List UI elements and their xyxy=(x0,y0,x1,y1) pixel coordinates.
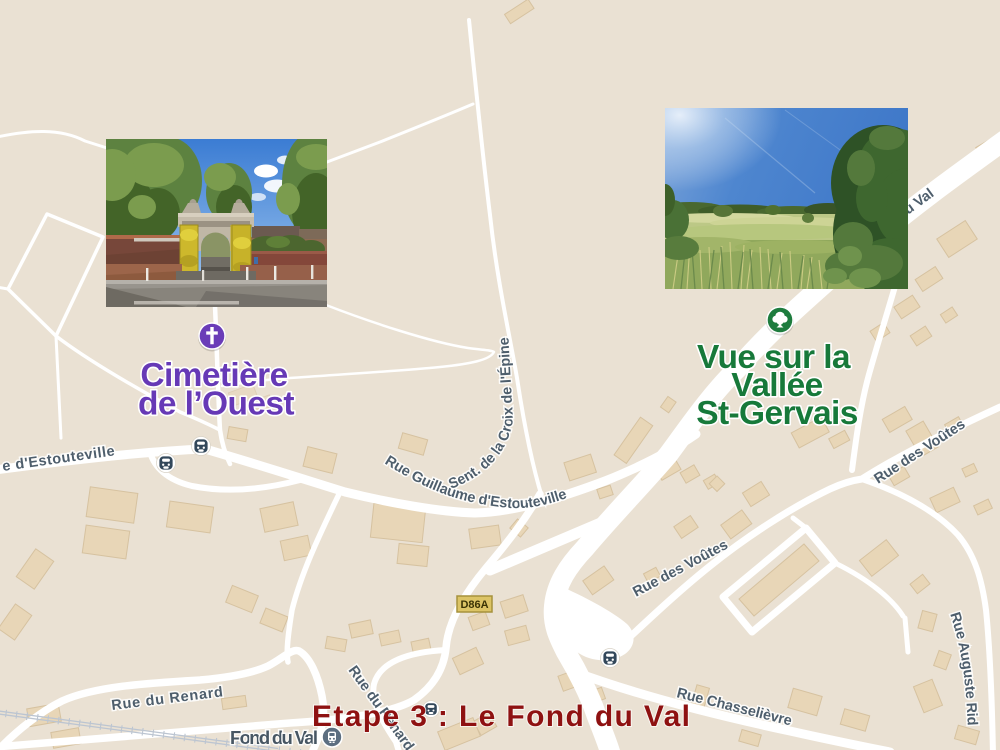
svg-text:Fond du Val: Fond du Val xyxy=(230,727,318,748)
svg-text:de l’Ouest: de l’Ouest xyxy=(138,386,294,423)
svg-text:Etape 3 : Le Fond du Val: Etape 3 : Le Fond du Val xyxy=(312,700,690,733)
svg-text:D86A: D86A xyxy=(460,599,488,611)
svg-text:St-Gervais: St-Gervais xyxy=(696,395,858,432)
